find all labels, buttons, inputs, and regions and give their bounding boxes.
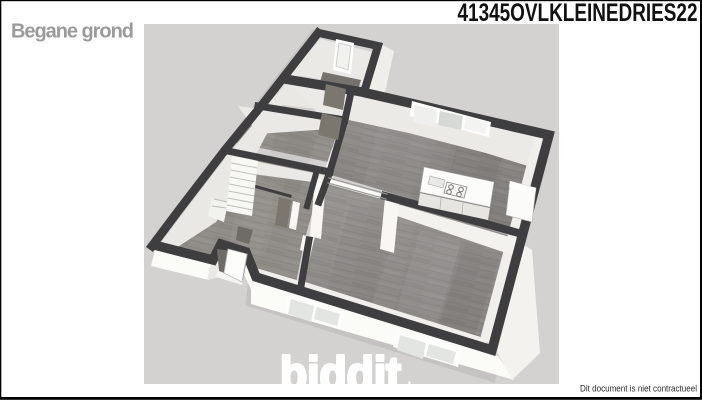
svg-text:41345OVLKLEINEDRIES22: 41345OVLKLEINEDRIES22 <box>458 0 698 27</box>
svg-text:biddit: biddit <box>280 349 401 402</box>
svg-text:Dit document is niet contractu: Dit document is niet contractueel <box>580 384 697 394</box>
svg-text:Begane grond: Begane grond <box>11 21 134 43</box>
svg-text:.be: .be <box>404 379 423 394</box>
